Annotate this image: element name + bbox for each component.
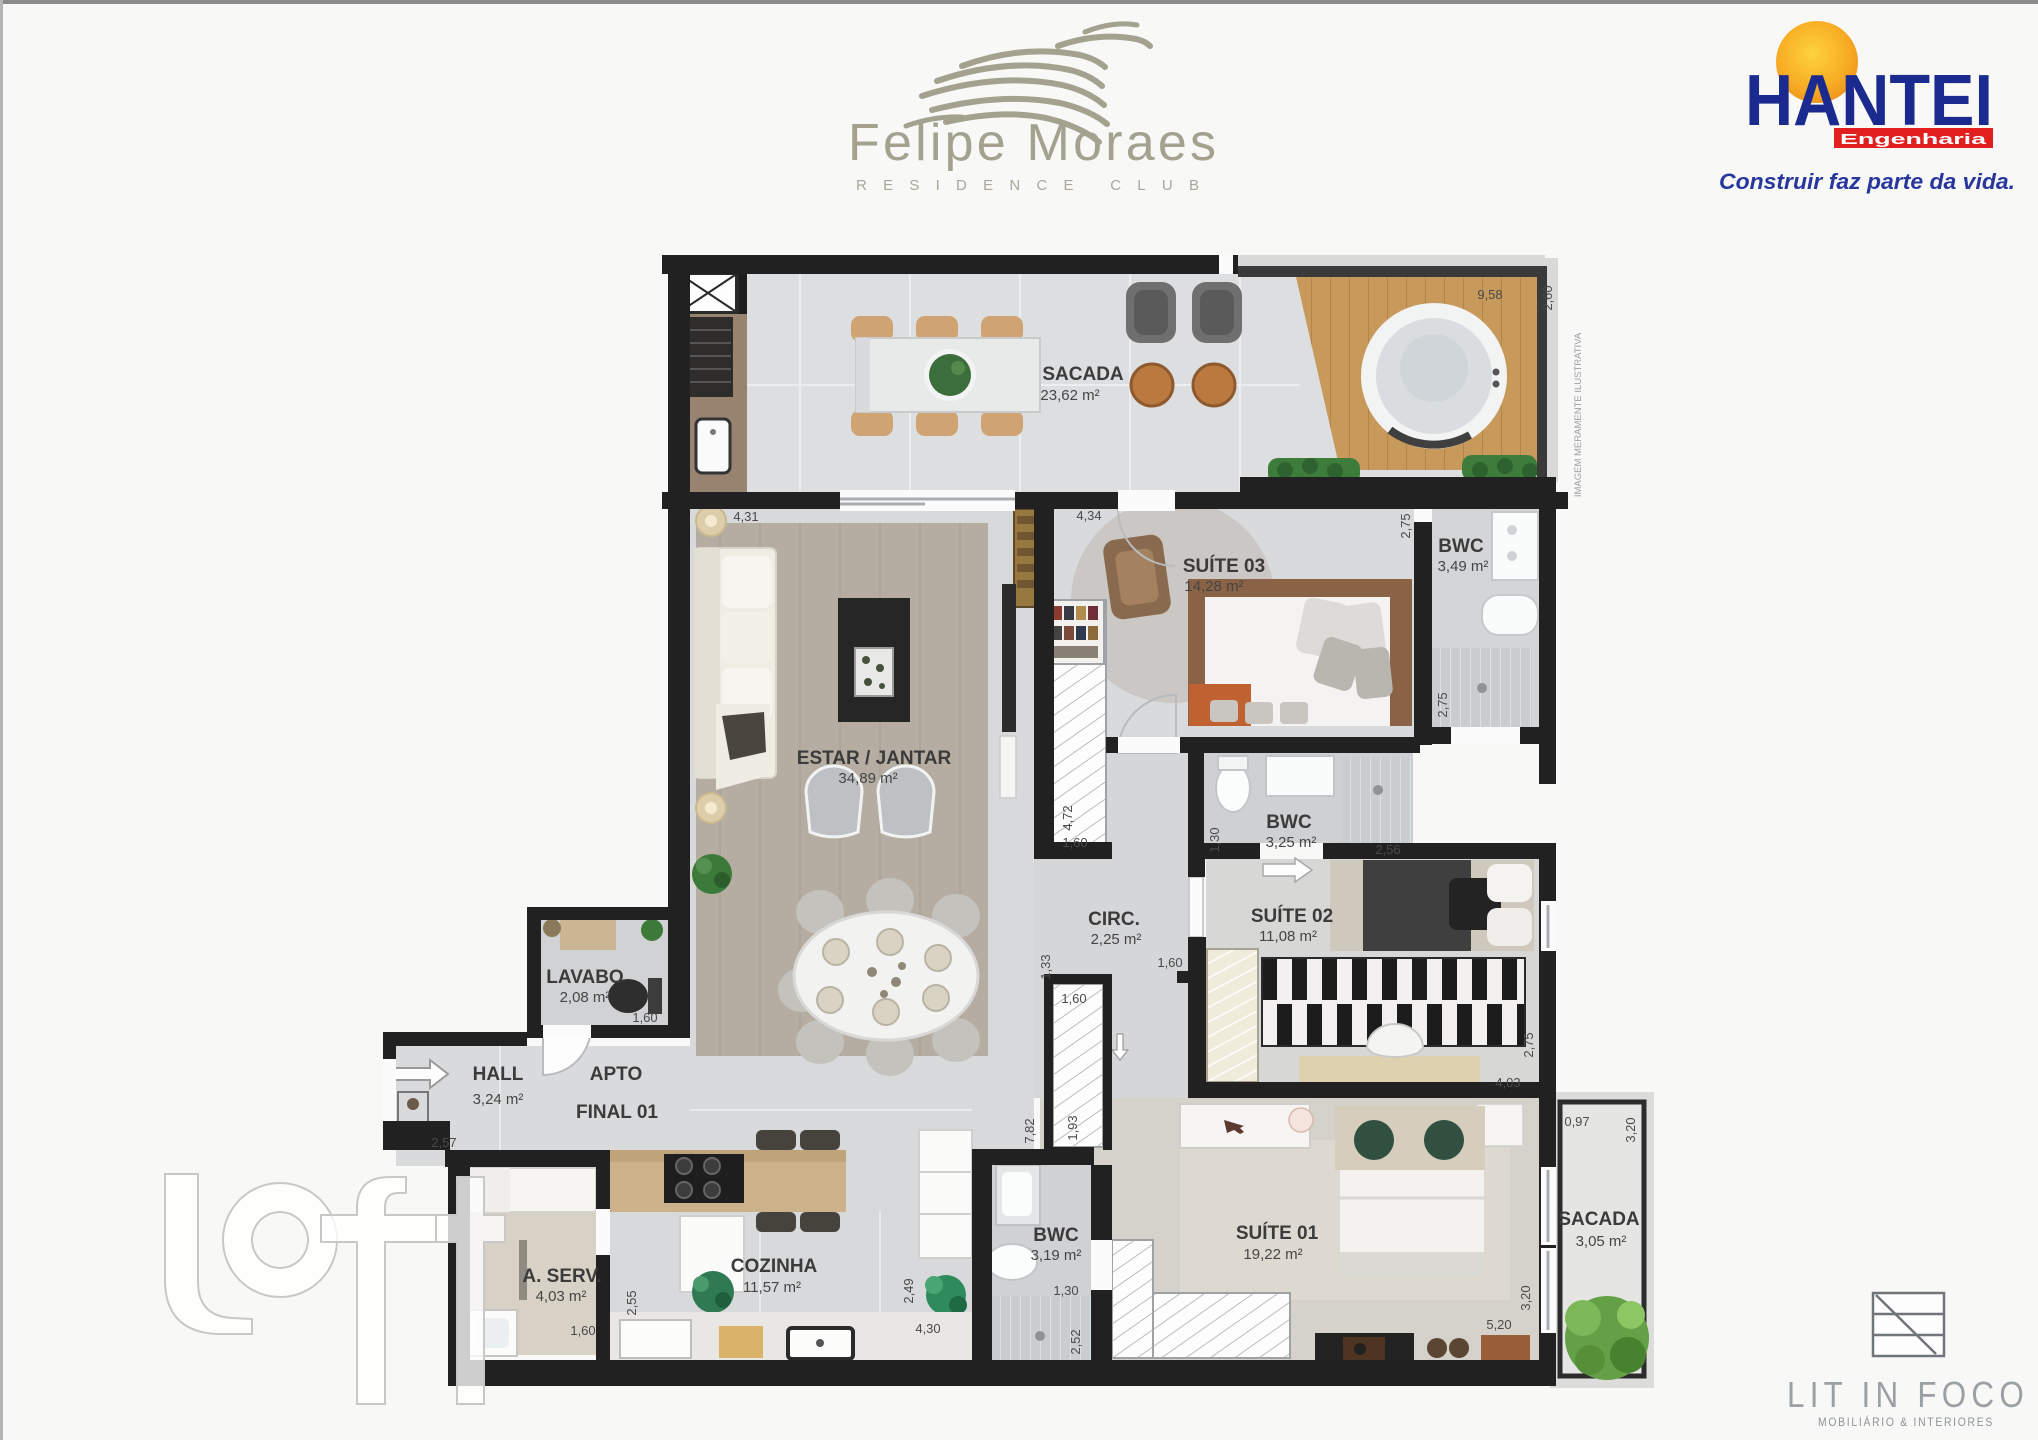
- svg-text:LIT IN FOCO: LIT IN FOCO: [1787, 1374, 2029, 1415]
- svg-text:2,60: 2,60: [1540, 285, 1555, 310]
- svg-text:IMAGEM MERAMENTE ILUSTRATIVA: IMAGEM MERAMENTE ILUSTRATIVA: [1573, 332, 1584, 497]
- svg-text:CIRC.: CIRC.: [1088, 909, 1140, 930]
- svg-text:1,30: 1,30: [1207, 827, 1222, 852]
- svg-text:1,93: 1,93: [1065, 1115, 1080, 1140]
- svg-text:SUÍTE 03: SUÍTE 03: [1183, 555, 1265, 577]
- svg-text:2,75: 2,75: [1435, 692, 1450, 717]
- svg-text:Construir faz parte da vida.: Construir faz parte da vida.: [1719, 169, 2015, 194]
- svg-text:1,60: 1,60: [1157, 955, 1182, 970]
- svg-text:MOBILIÁRIO & INTERIORES: MOBILIÁRIO & INTERIORES: [1818, 1414, 1994, 1429]
- svg-text:3,19 m²: 3,19 m²: [1031, 1247, 1082, 1264]
- svg-text:SUÍTE 01: SUÍTE 01: [1236, 1222, 1319, 1244]
- svg-text:1,33: 1,33: [1038, 954, 1053, 979]
- svg-text:1,30: 1,30: [1053, 1283, 1078, 1298]
- svg-text:2,57: 2,57: [431, 1135, 456, 1150]
- svg-text:Engenharia: Engenharia: [1840, 131, 1987, 148]
- svg-text:HALL: HALL: [473, 1064, 524, 1085]
- svg-text:APTO: APTO: [590, 1064, 642, 1085]
- svg-text:BWC: BWC: [1033, 1225, 1079, 1246]
- svg-text:14,28 m²: 14,28 m²: [1184, 578, 1243, 595]
- svg-text:9,58: 9,58: [1477, 287, 1502, 302]
- svg-text:4,31: 4,31: [733, 509, 758, 524]
- svg-text:LAVABO: LAVABO: [546, 967, 623, 988]
- svg-text:4,03: 4,03: [1495, 1075, 1520, 1090]
- svg-text:0,97: 0,97: [1564, 1114, 1589, 1129]
- svg-text:3,24 m²: 3,24 m²: [473, 1091, 524, 1108]
- svg-text:3,20: 3,20: [1518, 1285, 1533, 1310]
- svg-text:Felipe Moraes: Felipe Moraes: [848, 114, 1216, 172]
- svg-text:2,75: 2,75: [1521, 1032, 1536, 1057]
- svg-text:1,60: 1,60: [632, 1010, 657, 1025]
- svg-text:7,82: 7,82: [1022, 1118, 1037, 1143]
- svg-text:2,49: 2,49: [901, 1278, 916, 1303]
- svg-text:1,60: 1,60: [1062, 835, 1087, 850]
- svg-text:3,25 m²: 3,25 m²: [1266, 834, 1317, 851]
- svg-text:COZINHA: COZINHA: [731, 1256, 818, 1277]
- svg-text:11,08 m²: 11,08 m²: [1259, 928, 1317, 945]
- svg-text:3,05 m²: 3,05 m²: [1576, 1233, 1627, 1250]
- svg-text:2,55: 2,55: [624, 1290, 639, 1315]
- svg-text:4,34: 4,34: [1076, 508, 1101, 523]
- svg-text:1,60: 1,60: [570, 1323, 595, 1338]
- svg-text:BWC: BWC: [1266, 812, 1312, 833]
- svg-text:2,52: 2,52: [1068, 1329, 1083, 1354]
- svg-text:FINAL 01: FINAL 01: [576, 1102, 658, 1123]
- svg-text:3,49 m²: 3,49 m²: [1438, 558, 1489, 575]
- svg-text:23,62 m²: 23,62 m²: [1040, 387, 1099, 404]
- svg-text:BWC: BWC: [1438, 536, 1484, 557]
- svg-text:11,57 m²: 11,57 m²: [743, 1279, 801, 1296]
- svg-text:34,89 m²: 34,89 m²: [838, 770, 897, 787]
- svg-text:2,56: 2,56: [1375, 842, 1400, 857]
- svg-text:19,22 m²: 19,22 m²: [1243, 1246, 1302, 1263]
- svg-text:4,03 m²: 4,03 m²: [536, 1288, 587, 1305]
- svg-text:2,25 m²: 2,25 m²: [1091, 931, 1142, 948]
- svg-text:5,20: 5,20: [1486, 1317, 1511, 1332]
- svg-text:3,20: 3,20: [1623, 1117, 1638, 1142]
- svg-text:2,08 m²: 2,08 m²: [560, 989, 611, 1006]
- svg-text:A. SERV.: A. SERV.: [522, 1266, 601, 1287]
- svg-text:4,72: 4,72: [1060, 805, 1075, 830]
- svg-text:SUÍTE 02: SUÍTE 02: [1251, 905, 1333, 927]
- svg-text:4,30: 4,30: [915, 1321, 940, 1336]
- svg-text:SACADA: SACADA: [1042, 364, 1124, 385]
- svg-text:1,60: 1,60: [1061, 991, 1086, 1006]
- svg-text:ESTAR / JANTAR: ESTAR / JANTAR: [797, 748, 952, 769]
- svg-text:SACADA: SACADA: [1558, 1209, 1640, 1230]
- svg-text:2,75: 2,75: [1398, 513, 1413, 538]
